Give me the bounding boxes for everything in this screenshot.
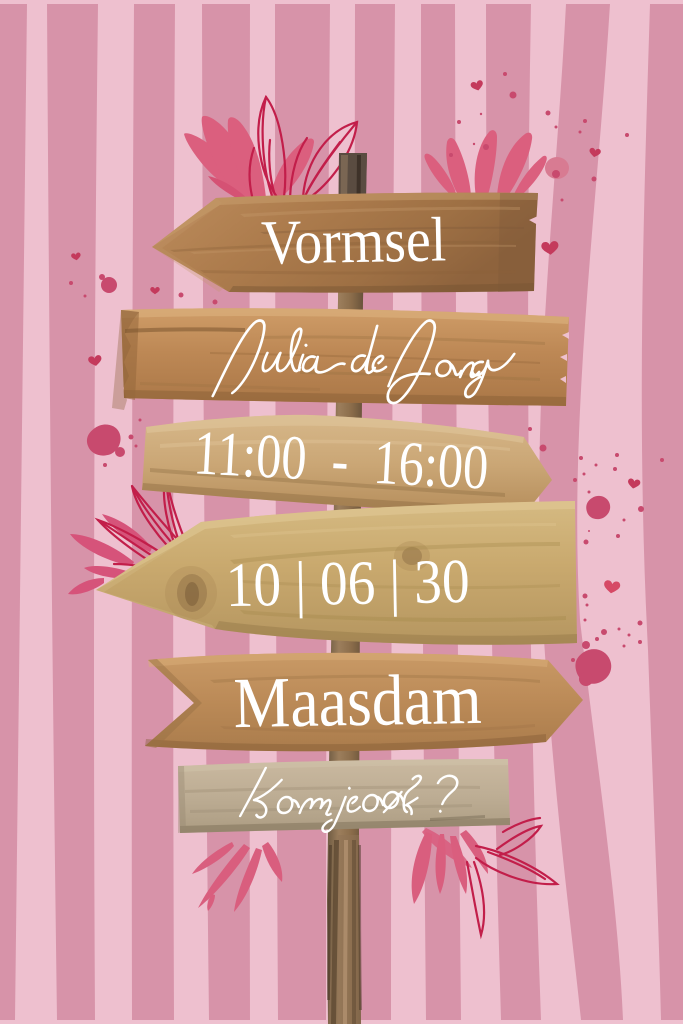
svg-text:Maasdam: Maasdam	[233, 658, 482, 743]
svg-text:10 | 06 | 30: 10 | 06 | 30	[225, 546, 470, 620]
svg-text:Vormsel: Vormsel	[261, 204, 447, 277]
